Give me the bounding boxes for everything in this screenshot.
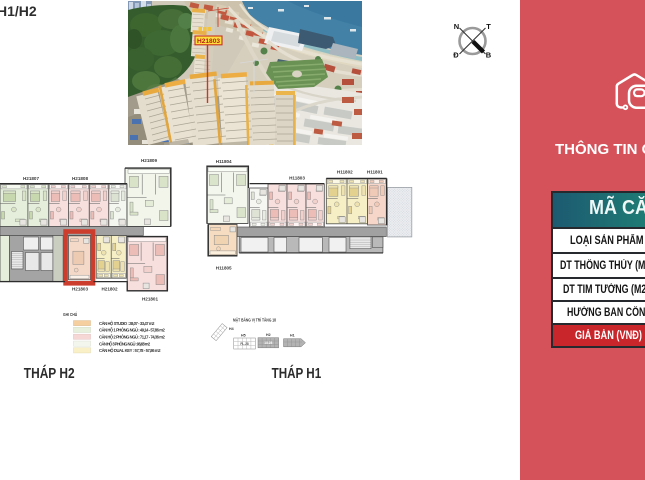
svg-text:H11801: H11801: [367, 170, 383, 175]
svg-text:18.28: 18.28: [264, 341, 272, 345]
svg-text:THÁP H2: THÁP H2: [24, 365, 75, 382]
svg-text:GHI CHÚ: GHI CHÚ: [63, 311, 78, 317]
svg-text:H1: H1: [290, 334, 295, 338]
svg-text:H11802: H11802: [337, 170, 353, 175]
svg-text:H2: H2: [266, 333, 271, 337]
svg-text:CĂN HỘ 2 PHÒNG NGỦ : 71,17 - 7: CĂN HỘ 2 PHÒNG NGỦ : 71,17 - 74,36 m2: [99, 334, 165, 339]
svg-text:H21803: H21803: [72, 287, 89, 292]
svg-text:CĂN HỘ 1 PHÒNG NGỦ : 49,14 - 5: CĂN HỘ 1 PHÒNG NGỦ : 49,14 - 57,86 m2: [99, 328, 165, 333]
svg-text:CĂN HỘ 3 PHÒNG NGỦ : 96,68 m2: CĂN HỘ 3 PHÒNG NGỦ : 96,68 m2: [99, 341, 151, 346]
svg-text:THÁP H1: THÁP H1: [272, 365, 322, 382]
svg-text:CĂN HỘ DUAL KEY : 57,78 - 57,8: CĂN HỘ DUAL KEY : 57,78 - 57,86 m2: [99, 348, 161, 353]
svg-text:H4: H4: [229, 327, 234, 331]
svg-text:H21809: H21809: [141, 158, 158, 163]
svg-text:MẶT BẰNG VỊ TRÍ TẦNG 18: MẶT BẰNG VỊ TRÍ TẦNG 18: [233, 316, 276, 323]
svg-text:H5: H5: [241, 334, 246, 338]
svg-text:H11803: H11803: [289, 176, 305, 181]
svg-text:H21802: H21802: [101, 287, 118, 292]
svg-text:CĂN HỘ STUDIO : 28,07 - 33,47: CĂN HỘ STUDIO : 28,07 - 33,47 m2: [99, 321, 155, 326]
svg-text:H11804: H11804: [216, 159, 232, 164]
svg-text:H21808: H21808: [72, 176, 89, 181]
svg-text:FL.28: FL.28: [240, 342, 249, 346]
svg-text:H21807: H21807: [23, 176, 40, 181]
svg-text:H11805: H11805: [216, 266, 232, 271]
svg-text:H21801: H21801: [142, 297, 159, 302]
